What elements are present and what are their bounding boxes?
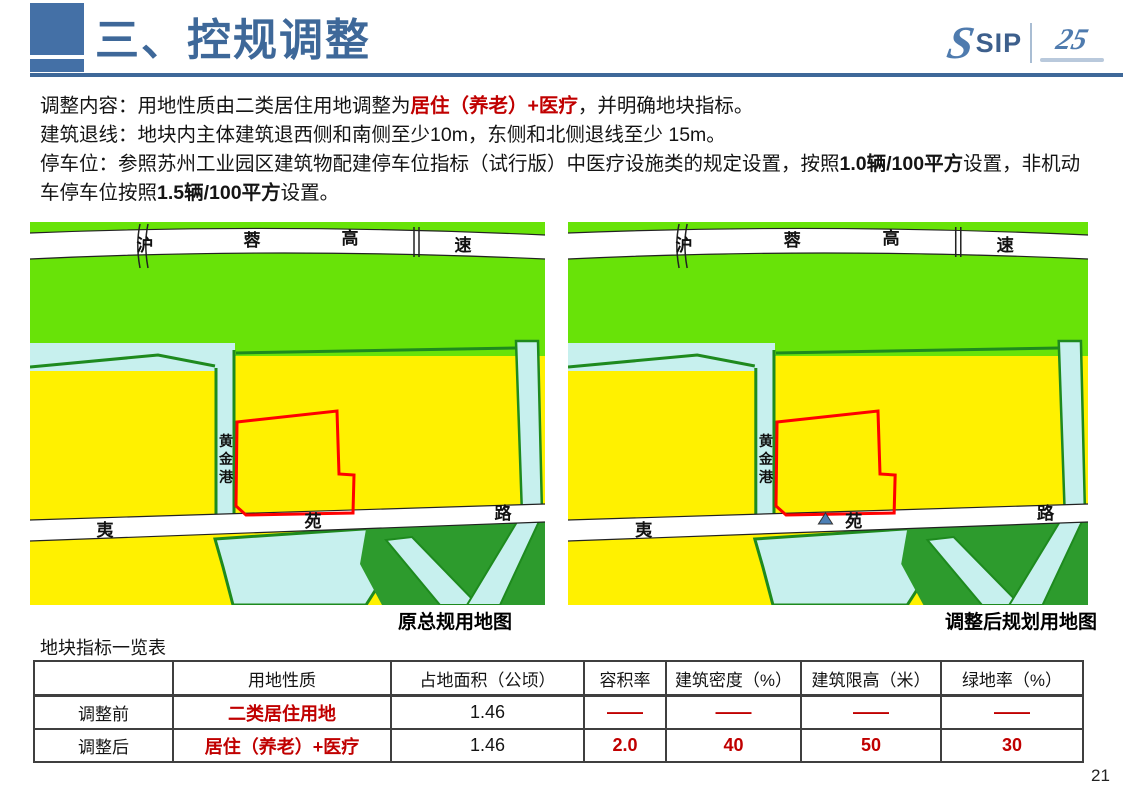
p1-prefix: 调整内容：用地性质由二类居住用地调整为	[40, 95, 411, 117]
p3-ratio-2: 1.5辆/100平方	[157, 182, 281, 204]
title-square-decoration	[30, 3, 84, 55]
p3-ratio-1: 1.0辆/100平方	[840, 153, 964, 175]
title-divider-rule	[30, 73, 1123, 77]
cell-height-limit: ——	[801, 696, 941, 730]
table-row-after: 调整后 居住（养老）+医疗 1.46 2.0 40 50 30	[34, 729, 1083, 762]
row-label: 调整前	[34, 696, 173, 730]
row-label: 调整后	[34, 729, 173, 762]
expressway-label-4: 速	[455, 235, 472, 255]
table-header-row: 用地性质 占地面积（公顷） 容积率 建筑密度（%） 建筑限高（米） 绿地率（%）	[34, 661, 1083, 696]
water-channel-right	[1059, 341, 1085, 515]
cell-density: 40	[666, 729, 801, 762]
slide-canvas: { "slide": { "title": "三、控规调整", "page_nu…	[0, 0, 1123, 794]
cell-green-ratio: ——	[941, 696, 1083, 730]
expressway-label-2: 蓉	[244, 230, 261, 250]
paragraph-setback: 建筑退线：地块内主体建筑退西侧和南侧至少10m，东侧和北侧退线至少 15m。	[40, 121, 1095, 150]
sip-logo: S SIP 25	[948, 14, 1118, 72]
cell-height-limit: 50	[801, 729, 941, 762]
p1-suffix: ，并明确地块指标。	[578, 95, 754, 117]
river-label-3: 港	[219, 469, 234, 485]
expressway-label-1: 沪	[137, 235, 154, 255]
logo-25-text: 25	[1053, 25, 1090, 55]
logo-divider	[1030, 23, 1032, 63]
river-label-2: 金	[758, 451, 774, 467]
cell-area: 1.46	[391, 729, 584, 762]
cell-land-use: 居住（养老）+医疗	[173, 729, 391, 762]
landuse-map-svg: 沪 蓉 高 速 黄 金 港 夷 苑 路	[30, 222, 545, 605]
water-channel-right	[516, 341, 542, 515]
title-bar-decoration	[30, 59, 84, 72]
landuse-map-svg: 沪 蓉 高 速 黄 金 港 夷 苑 路	[568, 222, 1088, 605]
header-empty	[34, 661, 173, 696]
page-title: 三、控规调整	[95, 4, 371, 68]
road-label-3: 路	[1037, 503, 1055, 523]
header-land-use: 用地性质	[173, 661, 391, 696]
p3-prefix: 停车位：参照苏州工业园区建筑物配建停车位指标（试行版）中医疗设施类的规定设置，按…	[40, 153, 840, 175]
cell-density: ——	[666, 696, 801, 730]
map-original-plan: 沪 蓉 高 速 黄 金 港 夷 苑 路	[30, 222, 545, 605]
header-density: 建筑密度（%）	[666, 661, 801, 696]
sip-swoosh-icon: S	[944, 20, 978, 66]
paragraph-parking: 停车位：参照苏州工业园区建筑物配建停车位指标（试行版）中医疗设施类的规定设置，按…	[40, 150, 1095, 208]
river-label-1: 黄	[759, 433, 773, 449]
river-label-1: 黄	[219, 433, 233, 449]
map-caption-adjusted: 调整后规划用地图	[568, 607, 1097, 634]
cell-far: ——	[584, 696, 666, 730]
expressway-label-3: 高	[883, 228, 900, 248]
road-label-1: 夷	[635, 520, 653, 540]
road-label-2: 苑	[305, 511, 322, 531]
table-row-before: 调整前 二类居住用地 1.46 —— —— —— ——	[34, 696, 1083, 730]
expressway-label-4: 速	[997, 235, 1014, 255]
expressway-label-2: 蓉	[784, 230, 802, 250]
p1-highlight: 居住（养老）+医疗	[411, 95, 578, 117]
river-label-3: 港	[759, 469, 774, 485]
map-caption-original: 原总规用地图	[30, 607, 512, 634]
table-caption: 地块指标一览表	[40, 634, 166, 660]
expressway-label-1: 沪	[676, 235, 693, 255]
sip-logo-text: SIP	[976, 28, 1023, 59]
cell-green-ratio: 30	[941, 729, 1083, 762]
expressway-label-3: 高	[342, 228, 359, 248]
logo-anniversary: 25	[1040, 25, 1104, 62]
page-number: 21	[1091, 766, 1110, 786]
road-label-1: 夷	[97, 520, 115, 540]
river-label-2: 金	[218, 451, 234, 467]
map-adjusted-plan: 沪 蓉 高 速 黄 金 港 夷 苑 路	[568, 222, 1088, 605]
header-height-limit: 建筑限高（米）	[801, 661, 941, 696]
header-green-ratio: 绿地率（%）	[941, 661, 1083, 696]
cell-far: 2.0	[584, 729, 666, 762]
header-area: 占地面积（公顷）	[391, 661, 584, 696]
logo-fineprint-strip	[1040, 58, 1104, 62]
body-text: 调整内容：用地性质由二类居住用地调整为居住（养老）+医疗，并明确地块指标。 建筑…	[40, 92, 1095, 208]
road-label-3: 路	[495, 503, 513, 523]
paragraph-adjust-content: 调整内容：用地性质由二类居住用地调整为居住（养老）+医疗，并明确地块指标。	[40, 92, 1095, 121]
road-label-2: 苑	[844, 511, 862, 531]
cell-land-use: 二类居住用地	[173, 696, 391, 730]
cell-area: 1.46	[391, 696, 584, 730]
header-far: 容积率	[584, 661, 666, 696]
p3-suffix: 设置。	[281, 182, 340, 204]
plot-indicators-table: 用地性质 占地面积（公顷） 容积率 建筑密度（%） 建筑限高（米） 绿地率（%）…	[33, 660, 1084, 763]
